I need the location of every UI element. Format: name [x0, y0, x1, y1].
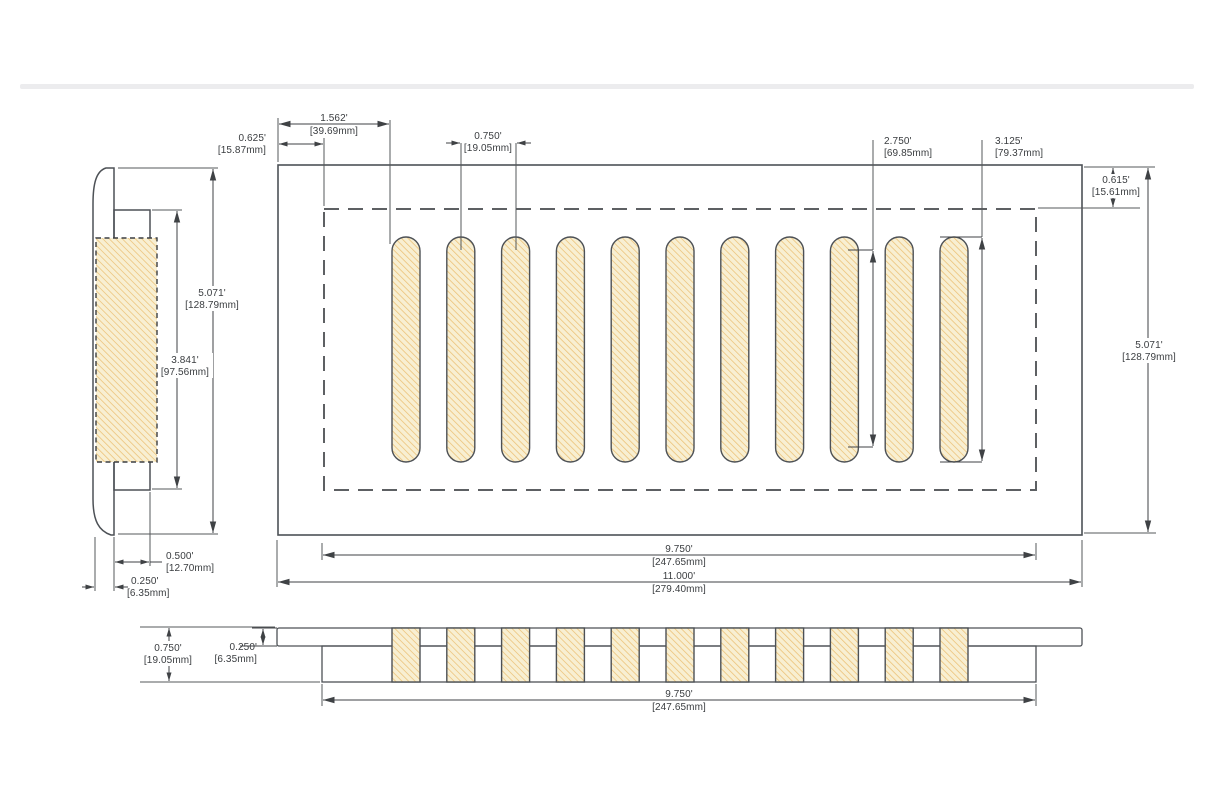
- dim-opening-side-inset: 0.625' [15.87mm]: [218, 133, 324, 206]
- dim-side-body-depth: 0.500' [12.70mm]: [114, 492, 214, 591]
- front-view: 0.750' [19.05mm] 0.250' [6.35mm] 9.750' …: [140, 627, 1082, 713]
- dim-opening-width-mm: [247.65mm]: [652, 557, 706, 568]
- page-divider: [20, 84, 1194, 89]
- vent-slot-front: [885, 628, 913, 682]
- vent-slot: [776, 237, 804, 462]
- dim-front-flange-depth-in: 0.250': [229, 642, 257, 653]
- dim-side-flange-depth-in: 0.250': [131, 576, 159, 587]
- vent-slot: [611, 237, 639, 462]
- vent-slot-front: [721, 628, 749, 682]
- vent-slot-front: [556, 628, 584, 682]
- dimension-drawing: 5.071' [128.79mm] 3.841' [97.56mm] 0.500…: [0, 0, 1214, 809]
- dim-slot-offset: 1.562' [39.69mm]: [278, 113, 390, 244]
- dim-opening-width: 9.750' [247.65mm]: [322, 543, 1036, 568]
- vent-slot-front: [666, 628, 694, 682]
- dim-slot-inner-length-in: 2.750': [884, 136, 912, 147]
- dim-overall-height-mm: [128.79mm]: [1122, 352, 1176, 363]
- drawing-page: 5.071' [128.79mm] 3.841' [97.56mm] 0.500…: [0, 0, 1214, 809]
- dim-opening-top-inset: 0.615' [15.61mm]: [1038, 167, 1155, 208]
- dim-side-overall-height-in: 5.071': [198, 288, 226, 299]
- dim-slot-length-in: 3.125': [995, 136, 1023, 147]
- dim-front-body-width-mm: [247.65mm]: [652, 702, 706, 713]
- dim-slot-pitch-in: 0.750': [474, 131, 502, 142]
- dim-slot-pitch-mm: [19.05mm]: [464, 143, 512, 154]
- vent-slot: [556, 237, 584, 462]
- dim-slot-inner-length-mm: [69.85mm]: [884, 148, 932, 159]
- dim-side-body-height-in: 3.841': [171, 355, 199, 366]
- dim-front-total-depth-mm: [19.05mm]: [144, 655, 192, 666]
- side-view-duct-hatch: [96, 238, 157, 462]
- dim-side-flange-depth-mm: [6.35mm]: [127, 588, 170, 599]
- top-view: 1.562' [39.69mm] 0.625' [15.87mm] 0.750'…: [218, 113, 1180, 595]
- dim-slot-offset-in: 1.562': [320, 113, 348, 124]
- dim-opening-top-inset-in: 0.615': [1102, 175, 1130, 186]
- dim-side-flange-depth: 0.250' [6.35mm]: [82, 537, 170, 599]
- dim-front-body-width: 9.750' [247.65mm]: [322, 684, 1036, 713]
- dim-front-flange-depth: 0.250' [6.35mm]: [215, 628, 277, 665]
- vent-slot: [885, 237, 913, 462]
- vent-slot-front: [392, 628, 420, 682]
- vent-slot: [940, 237, 968, 462]
- front-view-slots: [392, 628, 968, 682]
- vent-slot-front: [611, 628, 639, 682]
- dim-opening-side-inset-in: 0.625': [238, 133, 266, 144]
- vent-slot-front: [940, 628, 968, 682]
- dim-side-overall-height-mm: [128.79mm]: [185, 300, 239, 311]
- vent-slot-front: [776, 628, 804, 682]
- dim-front-body-width-in: 9.750': [665, 689, 693, 700]
- dim-slot-pitch: 0.750' [19.05mm]: [446, 131, 531, 250]
- dim-opening-side-inset-mm: [15.87mm]: [218, 145, 266, 156]
- dim-side-body-depth-in: 0.500': [166, 551, 194, 562]
- dim-opening-width-in: 9.750': [665, 544, 693, 555]
- vent-slot: [666, 237, 694, 462]
- vent-slot: [830, 237, 858, 462]
- vent-slot-front: [830, 628, 858, 682]
- vent-slot: [447, 237, 475, 462]
- dim-opening-top-inset-mm: [15.61mm]: [1092, 187, 1140, 198]
- dim-front-total-depth-in: 0.750': [154, 643, 182, 654]
- dim-front-flange-depth-mm: [6.35mm]: [215, 654, 258, 665]
- dim-side-body-depth-mm: [12.70mm]: [166, 563, 214, 574]
- vent-slot-front: [447, 628, 475, 682]
- vent-slot-front: [502, 628, 530, 682]
- dim-overall-height: 5.071' [128.79mm]: [1084, 168, 1180, 533]
- top-view-slots: [392, 237, 968, 462]
- vent-slot: [721, 237, 749, 462]
- dim-overall-width-mm: [279.40mm]: [652, 584, 706, 595]
- side-view: 5.071' [128.79mm] 3.841' [97.56mm] 0.500…: [82, 168, 242, 599]
- dim-side-body-height: 3.841' [97.56mm]: [152, 210, 213, 489]
- dim-slot-offset-mm: [39.69mm]: [310, 126, 358, 137]
- dim-overall-height-in: 5.071': [1135, 340, 1163, 351]
- dim-side-body-height-mm: [97.56mm]: [161, 367, 209, 378]
- vent-slot: [392, 237, 420, 462]
- dim-slot-length-mm: [79.37mm]: [995, 148, 1043, 159]
- dim-overall-width-in: 11.000': [663, 571, 695, 582]
- vent-slot: [502, 237, 530, 462]
